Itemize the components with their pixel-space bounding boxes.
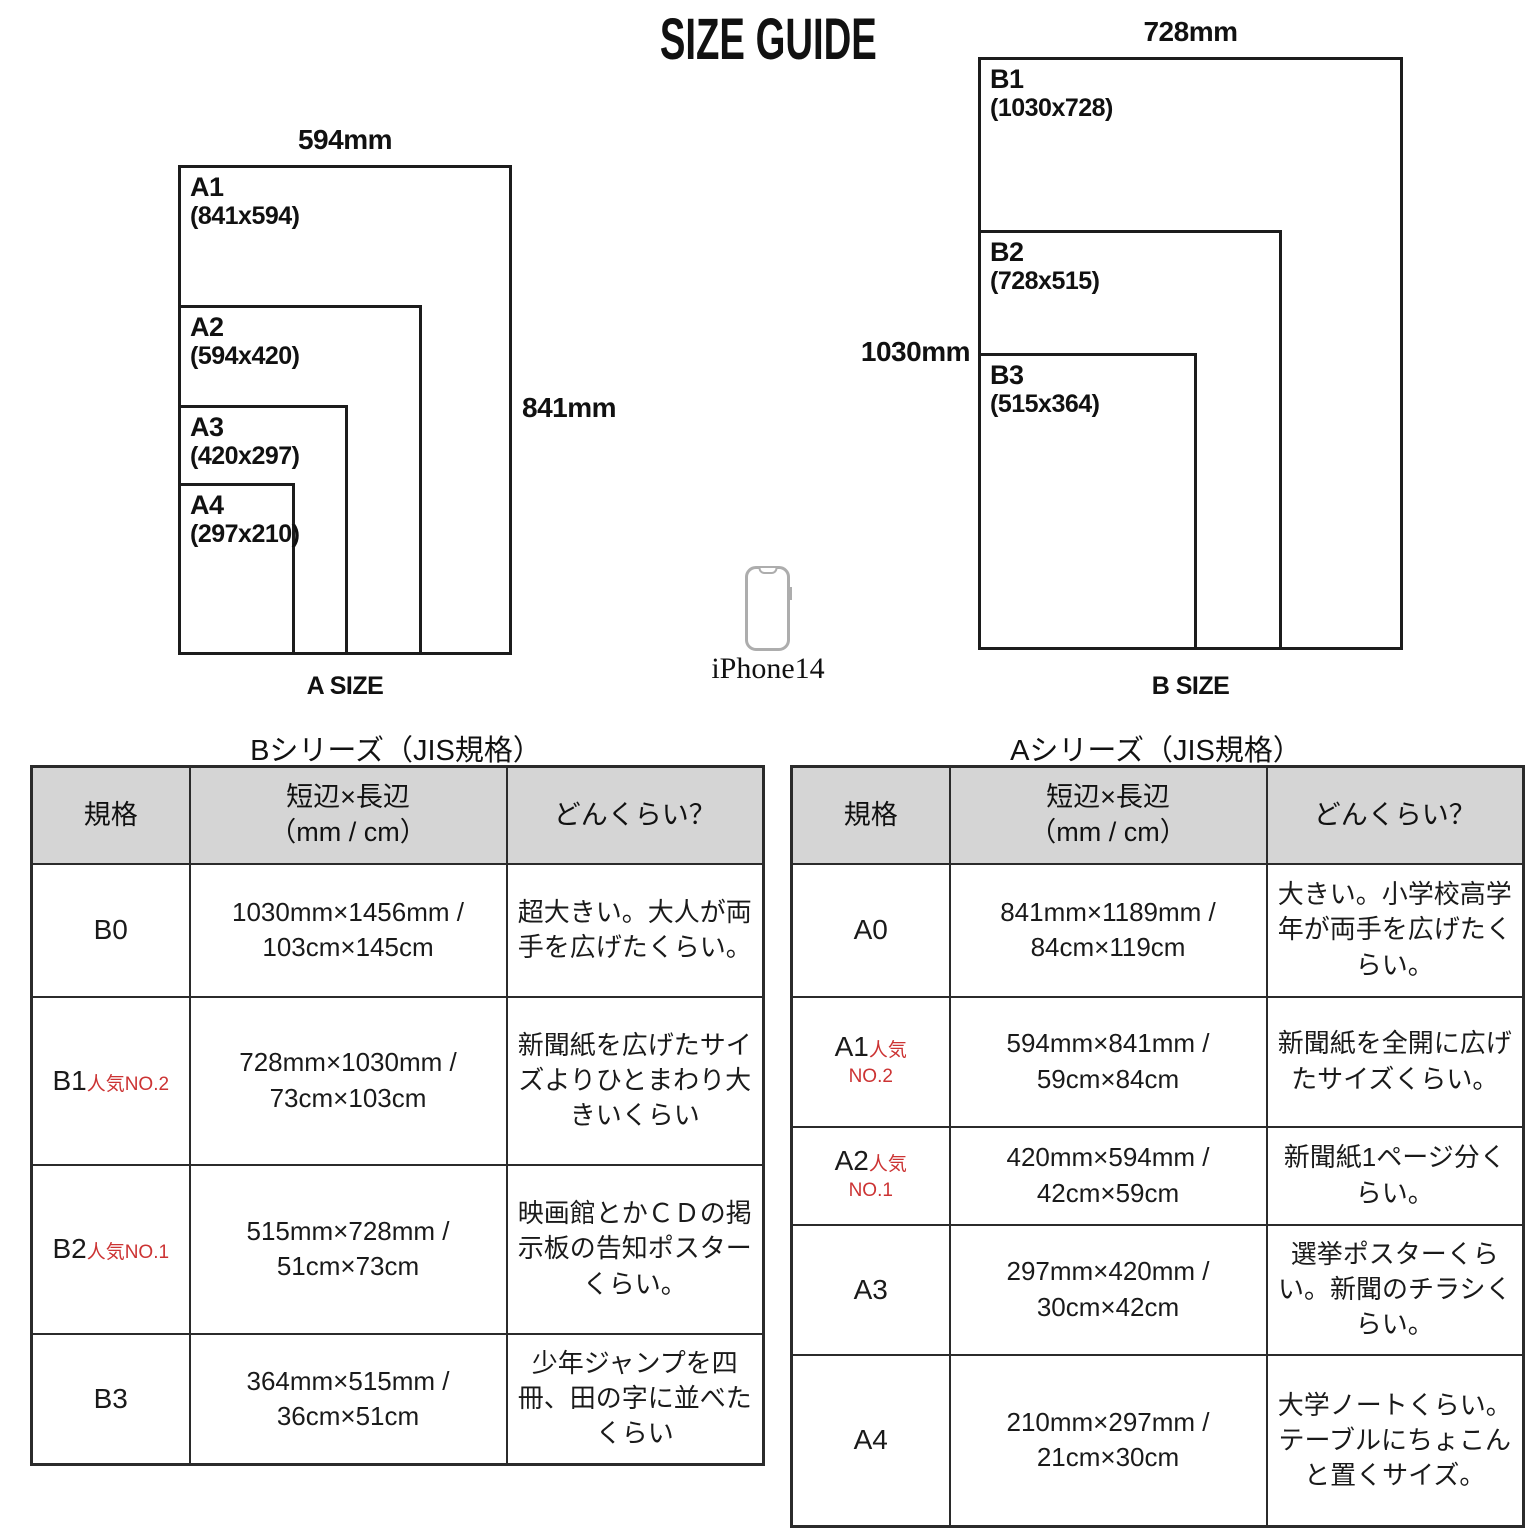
description-cell: 大きい。小学校高学年が両手を広げたくらい。 [1267, 864, 1524, 997]
iphone-notch-icon [758, 568, 777, 574]
table-row-a2: A2人気 NO.1 420mm×594mm / 42cm×59cm 新聞紙1ペー… [792, 1127, 1524, 1225]
header-about: どんくらい？ [507, 767, 764, 864]
sheet-a3-dims: (420x297) [190, 443, 299, 471]
sheet-b1-dims: (1030x728) [990, 95, 1113, 123]
sheet-a1-dims: (841x594) [190, 203, 299, 231]
size-cell: A0 [792, 864, 950, 997]
a-table-header-row: 規格 短辺×長辺 （mm / cm） どんくらい？ [792, 767, 1524, 864]
description-cell: 映画館とかＣＤの掲示板の告知ポスターくらい。 [507, 1165, 764, 1334]
size-label: B1 [52, 1065, 86, 1096]
sheet-a2-dims: (594x420) [190, 343, 299, 371]
header-about: どんくらい？ [1267, 767, 1524, 864]
sheet-a2-name: A2 [190, 312, 224, 342]
table-row-a0: A0 841mm×1189mm / 84cm×119cm 大きい。小学校高学年が… [792, 864, 1524, 997]
sheet-a4-label: A4 (297x210) [190, 491, 299, 548]
table-row-b0: B0 1030mm×1456mm / 103cm×145cm 超大きい。大人が両… [32, 864, 764, 997]
header-standard: 規格 [792, 767, 950, 864]
b-size-caption: B SIZE [978, 672, 1403, 701]
iphone-side-button-icon [790, 587, 792, 600]
sheet-a3-label: A3 (420x297) [190, 413, 299, 470]
sheet-b1-label: B1 (1030x728) [990, 65, 1113, 122]
iphone-icon [745, 566, 790, 651]
dimensions-cell: 594mm×841mm / 59cm×84cm [950, 997, 1267, 1127]
size-cell: B2人気NO.1 [32, 1165, 190, 1334]
sheet-b2-dims: (728x515) [990, 268, 1099, 296]
a-height-dimension-label: 841mm [522, 392, 616, 424]
description-cell: 新聞紙を全開に広げたサイズくらい。 [1267, 997, 1524, 1127]
size-label: A4 [854, 1424, 888, 1455]
size-label: A1 [835, 1031, 869, 1062]
header-dimensions-line2: （mm / cm） [959, 815, 1258, 850]
popularity-badge-line2: NO.1 [801, 1177, 941, 1206]
b-table-header-row: 規格 短辺×長辺 （mm / cm） どんくらい？ [32, 767, 764, 864]
size-cell: A3 [792, 1225, 950, 1355]
size-label: A0 [854, 914, 888, 945]
a-size-caption: A SIZE [178, 672, 512, 701]
size-label: B0 [94, 914, 128, 945]
sheet-a3-name: A3 [190, 412, 224, 442]
description-cell: 少年ジャンプを四冊、田の字に並べたくらい [507, 1334, 764, 1465]
sheet-a4-name: A4 [190, 490, 224, 520]
size-cell: B1人気NO.2 [32, 997, 190, 1165]
description-cell: 超大きい。大人が両手を広げたくらい。 [507, 864, 764, 997]
a-series-table: 規格 短辺×長辺 （mm / cm） どんくらい？ A0 841mm×1189m… [790, 765, 1525, 1528]
header-dimensions: 短辺×長辺 （mm / cm） [190, 767, 507, 864]
table-row-b2: B2人気NO.1 515mm×728mm / 51cm×73cm 映画館とかＣＤ… [32, 1165, 764, 1334]
sheet-a4-dims: (297x210) [190, 521, 299, 549]
description-cell: 大学ノートくらい。テーブルにちょこんと置くサイズ。 [1267, 1355, 1524, 1527]
sheet-a1-name: A1 [190, 172, 224, 202]
popularity-badge-line2: NO.2 [801, 1063, 941, 1092]
size-label: B3 [94, 1383, 128, 1414]
b-height-dimension-label: 1030mm [840, 336, 970, 368]
size-label: A2 [835, 1145, 869, 1176]
sheet-b2-label: B2 (728x515) [990, 238, 1099, 295]
header-dimensions-line1: 短辺×長辺 [959, 780, 1258, 815]
description-cell: 新聞紙1ページ分くらい。 [1267, 1127, 1524, 1225]
table-row-b3: B3 364mm×515mm / 36cm×51cm 少年ジャンプを四冊、田の字… [32, 1334, 764, 1465]
sheet-b1-name: B1 [990, 64, 1024, 94]
header-dimensions-line1: 短辺×長辺 [199, 780, 498, 815]
header-dimensions: 短辺×長辺 （mm / cm） [950, 767, 1267, 864]
sheet-a2-label: A2 (594x420) [190, 313, 299, 370]
size-cell: A4 [792, 1355, 950, 1527]
page-title: SIZE GUIDE [660, 6, 877, 73]
size-guide-infographic: { "page": { "title": "SIZE GUIDE" }, "co… [0, 0, 1536, 1536]
dimensions-cell: 841mm×1189mm / 84cm×119cm [950, 864, 1267, 997]
dimensions-cell: 210mm×297mm / 21cm×30cm [950, 1355, 1267, 1527]
sheet-b3: B3 (515x364) [978, 353, 1197, 650]
description-cell: 選挙ポスターくらい。新聞のチラシくらい。 [1267, 1225, 1524, 1355]
popularity-badge: 人気 [869, 1154, 907, 1175]
sheet-a4: A4 (297x210) [178, 483, 295, 655]
size-cell: B3 [32, 1334, 190, 1465]
a-width-dimension-label: 594mm [178, 124, 512, 156]
table-row-a4: A4 210mm×297mm / 21cm×30cm 大学ノートくらい。テーブル… [792, 1355, 1524, 1527]
sheet-b3-label: B3 (515x364) [990, 361, 1099, 418]
dimensions-cell: 515mm×728mm / 51cm×73cm [190, 1165, 507, 1334]
size-label: B2 [52, 1233, 86, 1264]
dimensions-cell: 364mm×515mm / 36cm×51cm [190, 1334, 507, 1465]
size-cell: A1人気 NO.2 [792, 997, 950, 1127]
description-cell: 新聞紙を広げたサイズよりひとまわり大きいくらい [507, 997, 764, 1165]
b-series-table: 規格 短辺×長辺 （mm / cm） どんくらい？ B0 1030mm×1456… [30, 765, 765, 1466]
popularity-badge: 人気 [869, 1040, 907, 1061]
a-table-title: Aシリーズ（JIS規格） [790, 727, 1522, 769]
size-label: A3 [854, 1274, 888, 1305]
dimensions-cell: 728mm×1030mm / 73cm×103cm [190, 997, 507, 1165]
dimensions-cell: 297mm×420mm / 30cm×42cm [950, 1225, 1267, 1355]
table-row-b1: B1人気NO.2 728mm×1030mm / 73cm×103cm 新聞紙を広… [32, 997, 764, 1165]
table-row-a3: A3 297mm×420mm / 30cm×42cm 選挙ポスターくらい。新聞の… [792, 1225, 1524, 1355]
dimensions-cell: 420mm×594mm / 42cm×59cm [950, 1127, 1267, 1225]
header-standard: 規格 [32, 767, 190, 864]
sheet-b2-name: B2 [990, 237, 1024, 267]
table-row-a1: A1人気 NO.2 594mm×841mm / 59cm×84cm 新聞紙を全開… [792, 997, 1524, 1127]
sheet-b3-name: B3 [990, 360, 1024, 390]
b-table-title: Bシリーズ（JIS規格） [30, 727, 762, 769]
size-cell: B0 [32, 864, 190, 997]
popularity-badge: 人気NO.1 [87, 1242, 169, 1263]
iphone-label: iPhone14 [688, 652, 848, 686]
b-width-dimension-label: 728mm [978, 16, 1403, 48]
dimensions-cell: 1030mm×1456mm / 103cm×145cm [190, 864, 507, 997]
header-dimensions-line2: （mm / cm） [199, 815, 498, 850]
sheet-b3-dims: (515x364) [990, 391, 1099, 419]
sheet-a1-label: A1 (841x594) [190, 173, 299, 230]
size-cell: A2人気 NO.1 [792, 1127, 950, 1225]
popularity-badge: 人気NO.2 [87, 1074, 169, 1095]
